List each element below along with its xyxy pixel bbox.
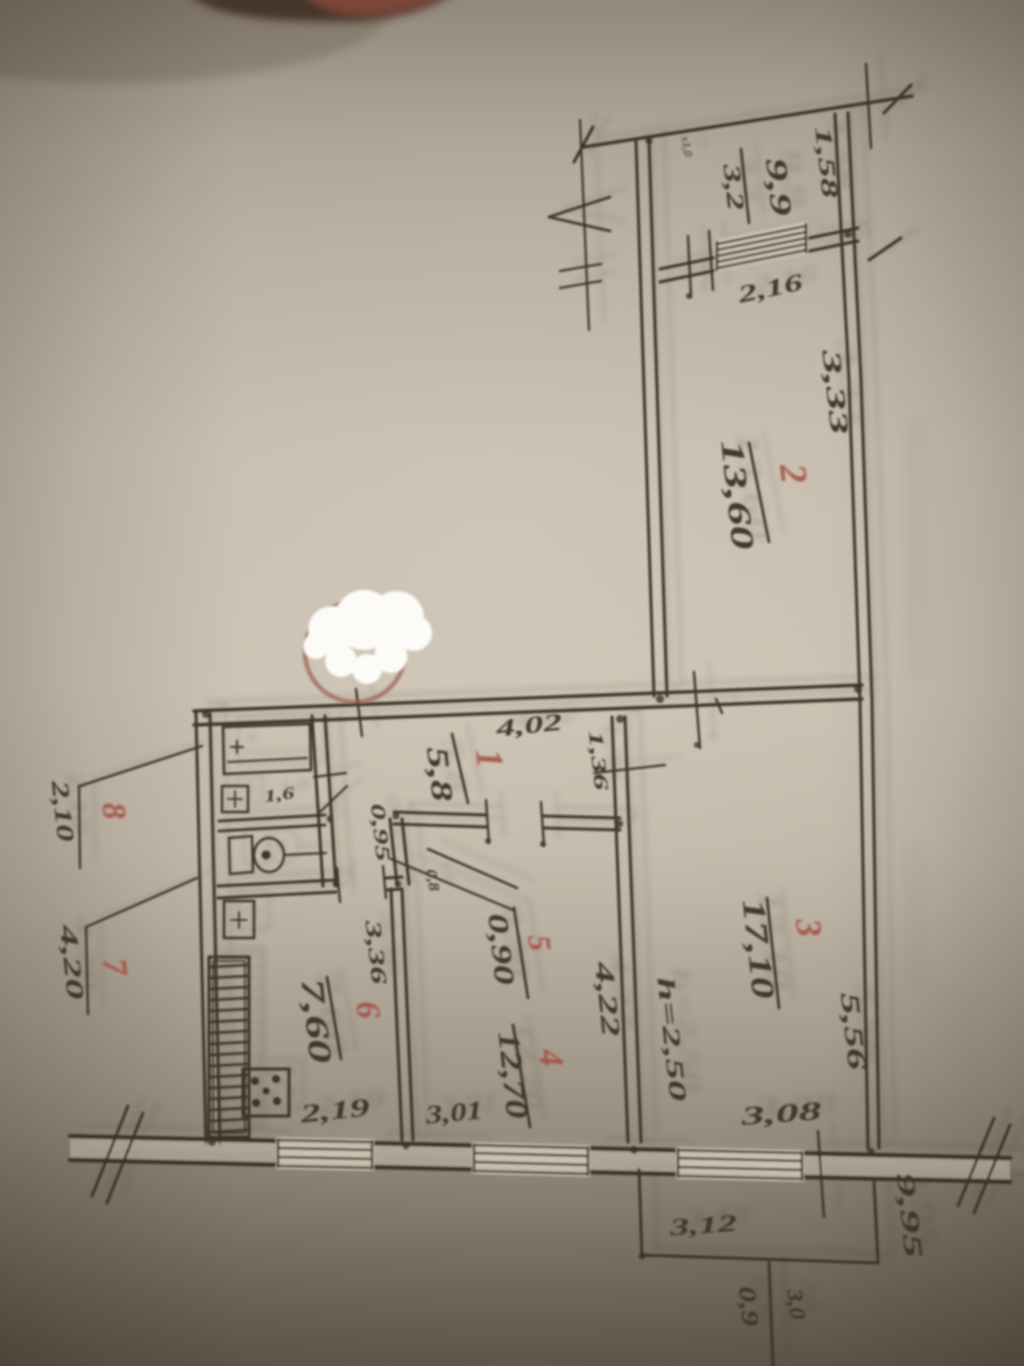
svg-text:3,12: 3,12: [668, 1211, 738, 1242]
svg-text:5,8: 5,8: [420, 745, 459, 803]
svg-text:9,9: 9,9: [759, 156, 798, 217]
svg-text:3,08: 3,08: [739, 1096, 823, 1131]
svg-text:0,9: 0,9: [733, 1285, 763, 1327]
svg-text:3,0: 3,0: [782, 1287, 810, 1321]
svg-text:3,01: 3,01: [423, 1096, 484, 1130]
svg-text:3,2: 3,2: [717, 162, 748, 212]
